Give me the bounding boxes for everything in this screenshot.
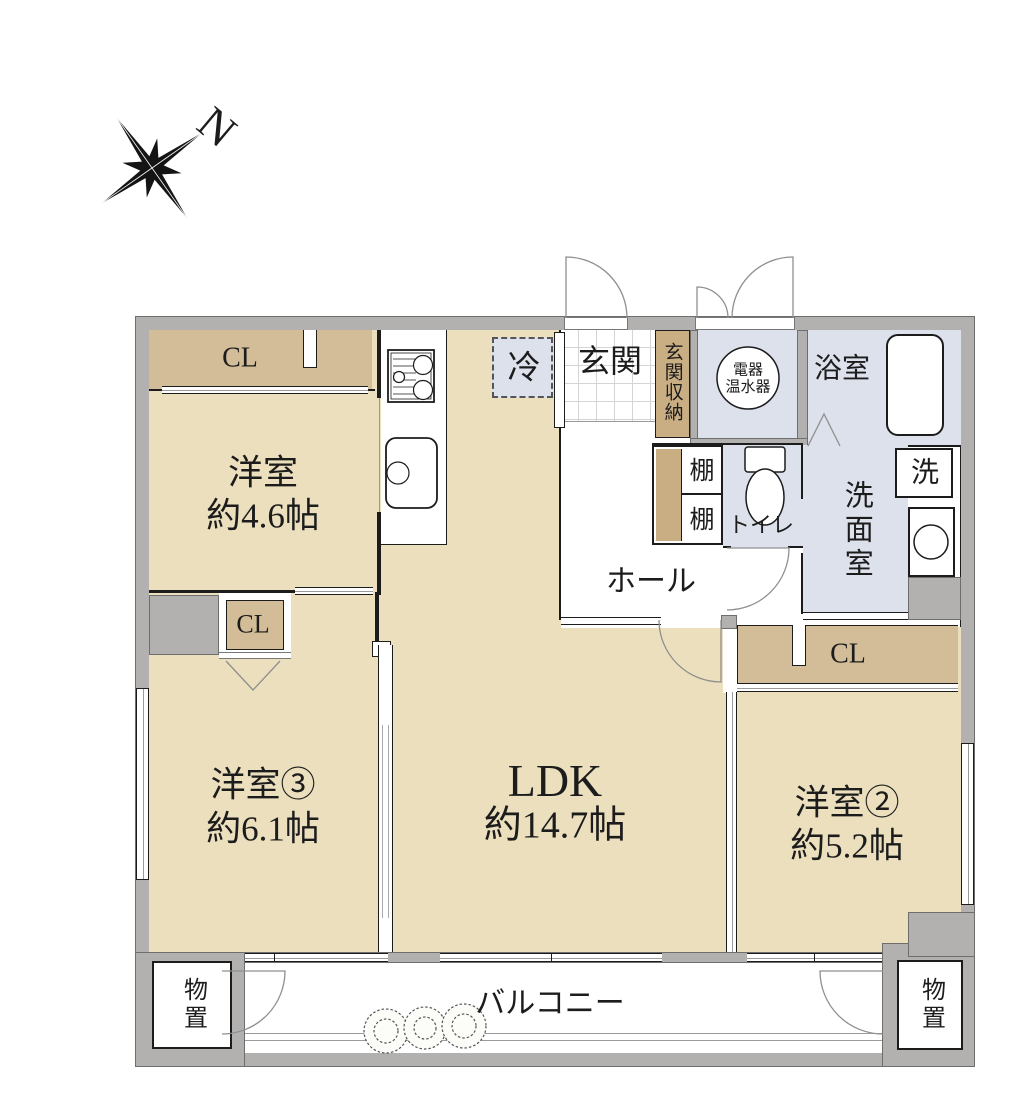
- closet-right-notch: [792, 625, 806, 666]
- closet-right-label: CL: [830, 638, 866, 669]
- sliding-door-closet-right: [737, 683, 958, 692]
- wall-toilet-bottom-b: [788, 546, 803, 548]
- washroom-label: 洗面室: [840, 480, 872, 582]
- basin-box: [908, 507, 955, 577]
- wall-wh-left: [690, 330, 698, 446]
- wall-bedroom1-right-lower: [377, 512, 381, 595]
- window-mullion-a: [274, 953, 275, 962]
- window-mullion-c: [814, 953, 815, 962]
- window-left-wall: [136, 688, 149, 880]
- shelf-upper-label: 棚: [689, 458, 714, 486]
- wall-washroom-left-a: [801, 443, 803, 499]
- shelf-strip: [656, 449, 682, 541]
- entrance-storage-label: 玄関収納: [661, 342, 682, 422]
- wall-hall-bottom: [561, 617, 661, 625]
- ldk-name: LDK: [508, 755, 603, 807]
- sliding-panel-line-b: [388, 725, 389, 918]
- window-mullion-b: [551, 953, 552, 962]
- entrance-cabinet: [554, 332, 565, 428]
- balcony-rail-b: [232, 1040, 882, 1041]
- refrigerator-label: 冷: [508, 351, 541, 388]
- wall-bedroom1-right-upper: [377, 330, 381, 398]
- closet-top-left: [149, 330, 372, 390]
- wall-wh-right: [797, 330, 808, 447]
- door-leaf-bedroom1: [379, 398, 380, 512]
- wh-door-opening: [695, 317, 795, 330]
- wall-bedroom3-ldk: [378, 645, 393, 952]
- bathroom-label: 浴室: [814, 353, 870, 384]
- closet-top-left-label: CL: [222, 342, 258, 373]
- wall-block-corner-right: [908, 912, 975, 957]
- entrance-label: 玄関: [578, 344, 642, 380]
- closet-top-left-notch: [303, 330, 317, 368]
- closet-mid-opening: [219, 652, 291, 659]
- shelf-divider: [682, 493, 723, 495]
- hall-label: ホール: [606, 565, 696, 599]
- wall-washroom-left-b: [801, 553, 803, 614]
- wall-block-washroom: [908, 577, 961, 620]
- wall-washroom-bottom: [803, 612, 910, 620]
- storage-left-label: 物置: [179, 977, 206, 1033]
- compass-icon: [101, 117, 203, 219]
- sliding-door-bedroom1: [295, 587, 373, 595]
- shelf-lower-label: 棚: [689, 507, 714, 535]
- water-heater-label-1: 電器: [733, 363, 763, 380]
- toilet-label: トイレ: [728, 514, 794, 539]
- window-right-wall: [961, 743, 974, 905]
- closet-mid-label: CL: [236, 609, 269, 638]
- balcony-rail-a: [232, 1033, 882, 1034]
- wh-door-arc-large: [732, 257, 793, 318]
- wall-mid-connector: [375, 592, 379, 645]
- wall-bedroom2-left: [726, 692, 737, 952]
- bedroom3-name: 洋室③: [210, 765, 315, 804]
- entrance-door-opening: [564, 317, 628, 330]
- wall-pillar-left: [149, 595, 219, 655]
- entrance-door-arc: [566, 257, 627, 318]
- bedroom2-name: 洋室②: [794, 783, 899, 822]
- wall-toilet-bottom-a: [723, 546, 731, 548]
- bedroom3-size: 約6.1帖: [206, 809, 320, 848]
- balcony-label: バルコニー: [475, 987, 624, 1021]
- bedroom1-size: 約4.6帖: [206, 496, 320, 535]
- floor-plan: N CL 洋室 約4.6帖 冷 玄関 玄関収納 電器 温水器 浴室 棚 棚 トイ…: [0, 0, 1010, 1107]
- sliding-door-cl-top: [162, 386, 368, 394]
- wh-door-arc-small: [697, 287, 728, 318]
- ldk-size: 約14.7帖: [484, 805, 627, 848]
- water-heater-label-2: 温水器: [725, 380, 770, 397]
- compass-north-label: N: [188, 97, 247, 158]
- kitchen-counter: [381, 330, 447, 545]
- bathtub-icon: [886, 334, 944, 436]
- bedroom1-name: 洋室: [228, 453, 298, 492]
- washer-label: 洗: [911, 457, 939, 488]
- storage-right-label: 物置: [917, 977, 944, 1033]
- sliding-panel-line-a: [382, 725, 383, 918]
- bedroom2-size: 約5.2帖: [790, 826, 904, 865]
- wall-block-hall: [721, 615, 737, 629]
